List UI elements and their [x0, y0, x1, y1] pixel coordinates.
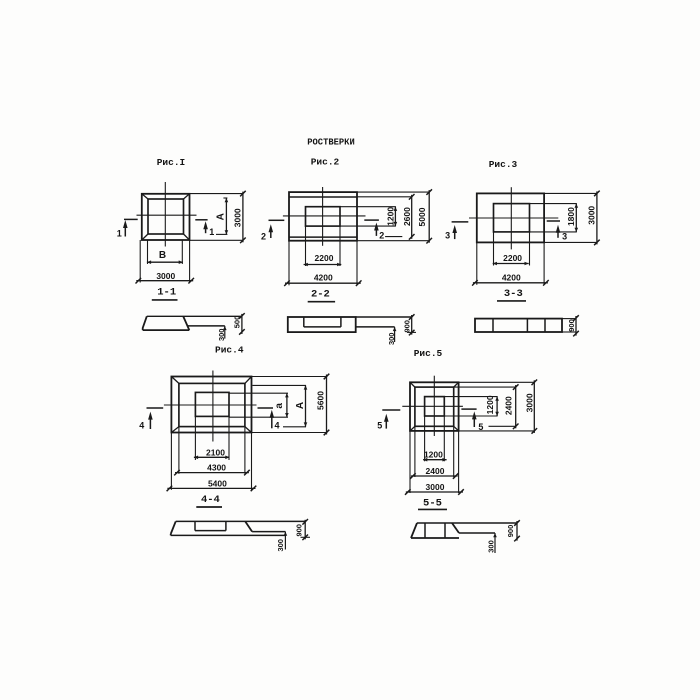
svg-text:5400: 5400 — [208, 478, 227, 488]
svg-text:300: 300 — [217, 329, 226, 342]
svg-text:3: 3 — [445, 231, 450, 241]
svg-text:2400: 2400 — [504, 396, 514, 415]
svg-text:1: 1 — [209, 227, 214, 237]
svg-text:3000: 3000 — [587, 206, 597, 225]
svg-text:900: 900 — [295, 524, 304, 537]
svg-text:a: a — [274, 403, 285, 409]
svg-text:3000: 3000 — [426, 482, 445, 492]
svg-text:2: 2 — [261, 232, 266, 242]
svg-text:900: 900 — [403, 320, 412, 333]
svg-text:4: 4 — [274, 420, 279, 430]
svg-text:300: 300 — [487, 540, 496, 553]
svg-text:3-3: 3-3 — [504, 288, 523, 300]
svg-text:3: 3 — [562, 232, 567, 242]
svg-text:3000: 3000 — [156, 271, 175, 281]
svg-text:Рис.4: Рис.4 — [215, 345, 244, 356]
svg-text:2600: 2600 — [402, 207, 412, 226]
svg-text:1: 1 — [117, 229, 122, 239]
svg-text:Рис.2: Рис.2 — [311, 157, 340, 168]
svg-text:2: 2 — [379, 230, 384, 240]
svg-text:2200: 2200 — [315, 253, 334, 263]
svg-text:2-2: 2-2 — [311, 289, 330, 301]
svg-text:1200: 1200 — [424, 449, 443, 459]
svg-text:2100: 2100 — [206, 447, 225, 457]
svg-text:4200: 4200 — [502, 272, 521, 282]
svg-text:3000: 3000 — [524, 393, 534, 412]
svg-text:3000: 3000 — [232, 208, 242, 227]
svg-text:2400: 2400 — [426, 466, 445, 476]
svg-text:Рис.3: Рис.3 — [489, 159, 518, 170]
svg-text:4-4: 4-4 — [201, 494, 220, 506]
svg-text:5600: 5600 — [316, 391, 326, 410]
svg-text:B: B — [159, 250, 166, 261]
svg-text:РОСТВЕРКИ: РОСТВЕРКИ — [307, 138, 355, 148]
svg-text:A: A — [215, 213, 226, 220]
svg-text:4: 4 — [139, 421, 144, 431]
svg-text:5: 5 — [377, 421, 382, 431]
svg-text:900: 900 — [506, 525, 515, 538]
svg-text:1-1: 1-1 — [157, 286, 176, 298]
svg-text:4200: 4200 — [314, 272, 333, 282]
svg-text:Рис.5: Рис.5 — [414, 348, 443, 359]
svg-text:300: 300 — [387, 333, 396, 346]
svg-text:2200: 2200 — [503, 253, 522, 263]
svg-text:5-5: 5-5 — [423, 497, 442, 509]
svg-text:500: 500 — [232, 316, 241, 329]
svg-text:A: A — [295, 402, 306, 409]
svg-text:4300: 4300 — [207, 463, 226, 473]
svg-text:900: 900 — [567, 319, 576, 332]
svg-text:300: 300 — [276, 539, 285, 552]
svg-text:1800: 1800 — [566, 207, 576, 226]
svg-text:Рис.I: Рис.I — [157, 157, 186, 168]
svg-text:1200: 1200 — [385, 207, 395, 226]
svg-text:1200: 1200 — [485, 395, 495, 414]
svg-text:5000: 5000 — [417, 207, 427, 226]
